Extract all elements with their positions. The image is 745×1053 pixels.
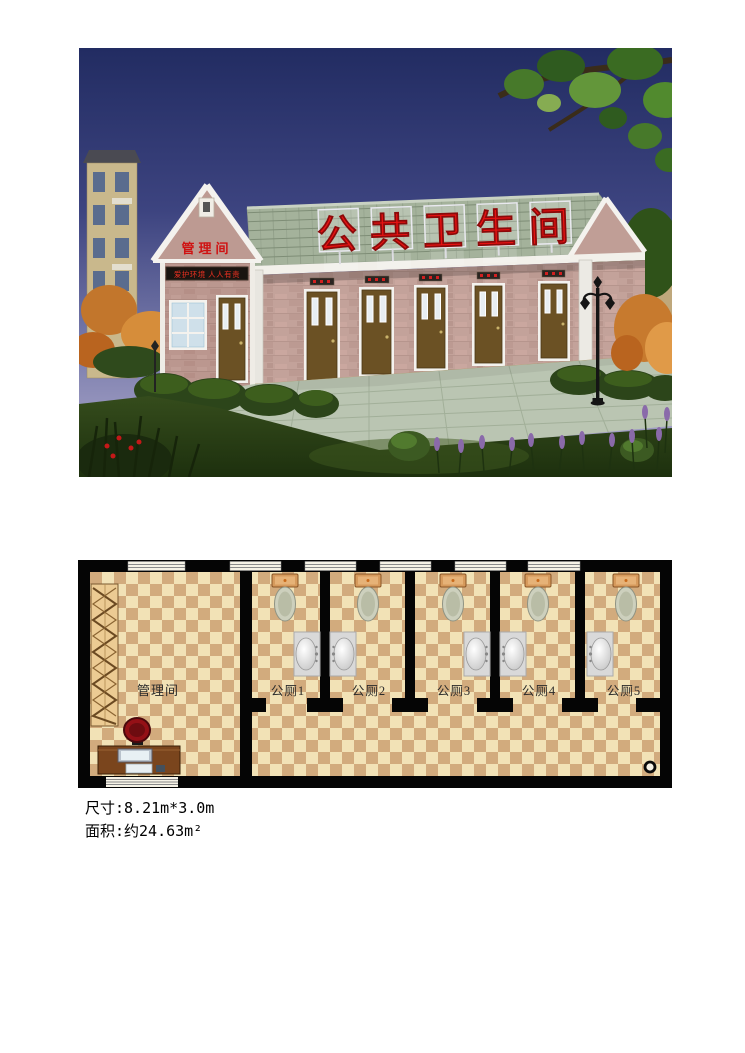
room-label-stall-4: 公厕4 (522, 684, 556, 698)
sink-icon (330, 632, 356, 676)
room-label-stall-1: 公厕1 (271, 684, 305, 698)
toilet-door-3 (414, 274, 448, 371)
room-label-stall-5: 公厕5 (607, 684, 641, 698)
gable-sign-text: 管理间 (181, 241, 232, 256)
spec-dimensions: 尺寸:8.21m*3.0m (85, 797, 214, 820)
spec-text: 尺寸:8.21m*3.0m 面积:约24.63m² (85, 797, 214, 843)
sink-icon (587, 632, 613, 676)
sink-icon (500, 632, 526, 676)
room-label-stall-2: 公厕2 (352, 684, 386, 698)
led-sign-text: 爱护环境 人人有责 (174, 269, 240, 279)
toilet-door-2 (359, 276, 394, 377)
sink-icon (464, 632, 490, 676)
portico-column-right (579, 260, 592, 362)
roof-sign-text: 公共卫生间 (316, 204, 582, 258)
floor-drain-icon (645, 762, 655, 772)
management-door (216, 295, 248, 383)
spec-area: 面积:约24.63m² (85, 820, 214, 843)
shelf-icon (91, 584, 118, 726)
document-page: 管理间 爱护环境 人人有责 (0, 0, 745, 1053)
office-desk-icon (98, 746, 180, 774)
rendering-canvas: 管理间 爱护环境 人人有责 (79, 48, 672, 477)
floor-plan-canvas: 管理间 公厕1 公厕2 公厕3 公厕4 公厕5 (78, 560, 672, 788)
floor-plan: 管理间 公厕1 公厕2 公厕3 公厕4 公厕5 (78, 560, 672, 788)
room-label-management: 管理间 (137, 683, 179, 698)
room-label-stall-3: 公厕3 (437, 684, 471, 698)
toilet-door-4 (472, 272, 505, 366)
management-entrance (106, 777, 178, 787)
toilet-door-1 (304, 278, 340, 383)
toilet-door-5 (538, 270, 570, 361)
sink-icon (294, 632, 320, 676)
management-partition-wall (240, 560, 252, 788)
building-rendering: 管理间 爱护环境 人人有责 (79, 48, 672, 477)
